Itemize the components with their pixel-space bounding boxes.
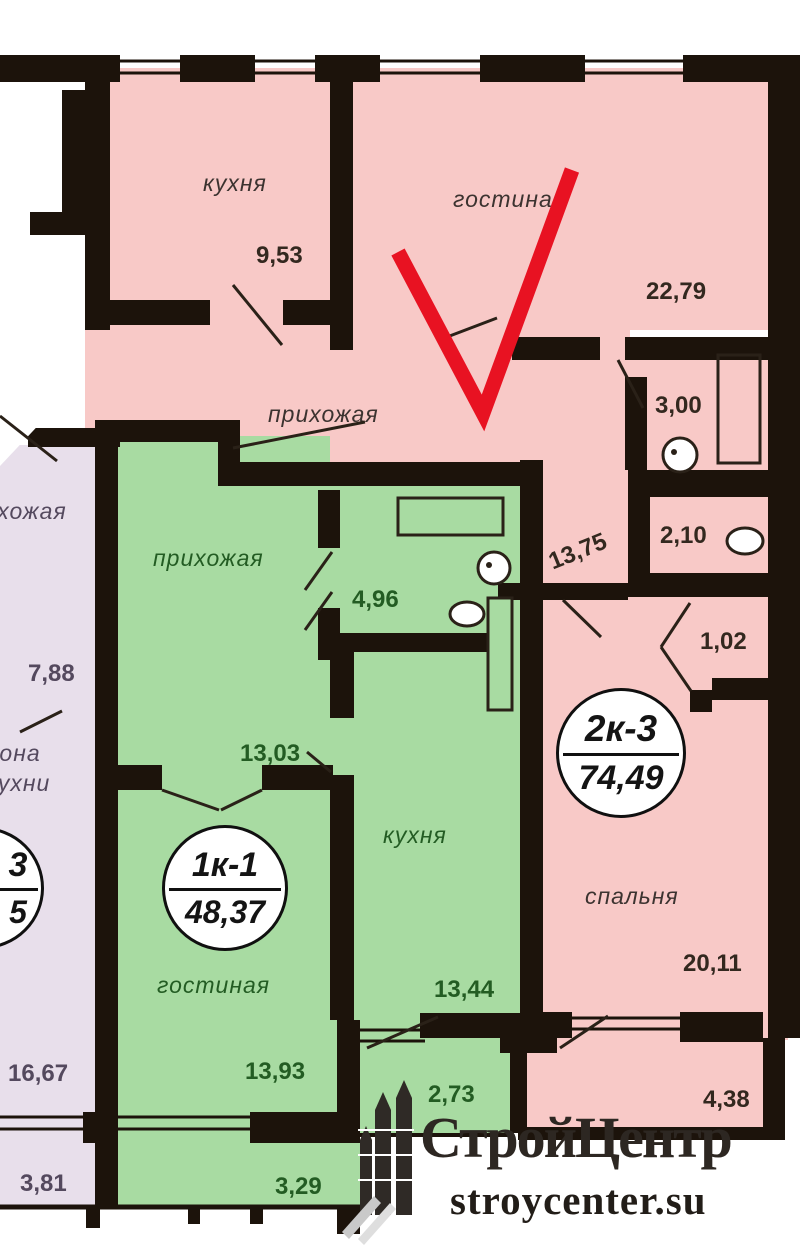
- wall: [628, 470, 775, 497]
- room-label-pink-bedroom: спальня: [585, 885, 679, 908]
- badge-divider: [563, 753, 680, 756]
- room-label-green-living: гостиная: [157, 974, 270, 997]
- room-label-pink-living: гостиная: [453, 188, 566, 211]
- room-area-pink-bedroom: 20,11: [683, 952, 742, 976]
- unit-badge-pink: 2к-3 74,49: [556, 688, 686, 818]
- wall: [690, 690, 712, 712]
- wall: [512, 337, 600, 360]
- room-label-purple-hall: прихожая: [0, 500, 67, 523]
- wall: [180, 55, 255, 82]
- room-area-green-hall: 13,03: [240, 742, 300, 766]
- unit-name-green: 1к-1: [192, 846, 258, 885]
- wall: [95, 420, 225, 442]
- wall: [315, 55, 380, 82]
- room-label-pink-hall: прихожая: [268, 403, 379, 426]
- wall: [110, 765, 162, 790]
- room-label-purple-zone-2: кухни: [0, 772, 50, 795]
- wall: [95, 438, 118, 1207]
- wall: [318, 490, 340, 548]
- room-area-green-balcony2: 3,29: [275, 1175, 322, 1199]
- unit-area-purple: 5: [9, 894, 27, 931]
- wall: [85, 300, 210, 325]
- room-area-purple-room: 16,67: [8, 1062, 68, 1086]
- watermark-site: stroycenter.su: [450, 1176, 707, 1224]
- wall: [500, 1013, 557, 1053]
- room-area-pink-wc: 2,10: [660, 524, 707, 548]
- wall: [330, 633, 492, 652]
- room-area-green-bath: 4,96: [352, 588, 399, 612]
- wall: [250, 1112, 360, 1143]
- window-tick: [86, 1206, 360, 1234]
- badge-divider: [169, 888, 282, 891]
- room-area-purple-balcony: 3,81: [20, 1172, 67, 1196]
- room-label-pink-kitchen: кухня: [203, 172, 267, 195]
- unit-area-green: 48,37: [185, 894, 265, 931]
- room-label-green-hall: прихожая: [153, 547, 264, 570]
- wall: [680, 1012, 763, 1042]
- wall: [520, 460, 543, 1038]
- wall: [283, 300, 333, 325]
- unit-area-pink: 74,49: [578, 759, 663, 798]
- badge-divider: [0, 888, 38, 891]
- unit-badge-green: 1к-1 48,37: [162, 825, 288, 951]
- wall: [83, 1112, 95, 1143]
- wall: [330, 652, 354, 718]
- wall: [330, 775, 354, 1020]
- room-area-pink-bath: 3,00: [655, 394, 702, 418]
- wall: [498, 583, 628, 600]
- wall: [628, 573, 775, 597]
- watermark-brand: СтройЦентр: [420, 1104, 731, 1171]
- room-label-green-kitchen: кухня: [383, 824, 447, 847]
- wall: [763, 1038, 785, 1137]
- floor-plan: кухня 9,53 гостиная 22,79 прихожая 13,75…: [0, 0, 800, 1245]
- wall: [480, 55, 585, 82]
- room-label-purple-zone-1: зона: [0, 742, 41, 765]
- wall: [225, 462, 530, 486]
- room-area-pink-kitchen: 9,53: [256, 244, 303, 268]
- room-area-purple-dim: 7,88: [28, 662, 75, 686]
- wall: [262, 765, 333, 790]
- wall: [625, 337, 768, 360]
- wall: [330, 82, 353, 350]
- room-area-green-kitchen: 13,44: [434, 978, 494, 1002]
- room-area-pink-storage: 1,02: [700, 630, 747, 654]
- wall: [30, 212, 85, 235]
- wall: [625, 377, 647, 470]
- wall: [768, 55, 800, 1038]
- room-area-green-living: 13,93: [245, 1060, 305, 1084]
- unit-name-purple: 3: [9, 846, 28, 885]
- room-area-pink-living: 22,79: [646, 280, 706, 304]
- unit-name-pink: 2к-3: [585, 708, 657, 750]
- wall: [628, 497, 650, 573]
- room-fill-pink-bath: [630, 345, 775, 470]
- wall: [85, 55, 110, 330]
- wall: [62, 90, 85, 215]
- wall: [712, 678, 775, 700]
- room-fill-green-balcony: [118, 1143, 360, 1207]
